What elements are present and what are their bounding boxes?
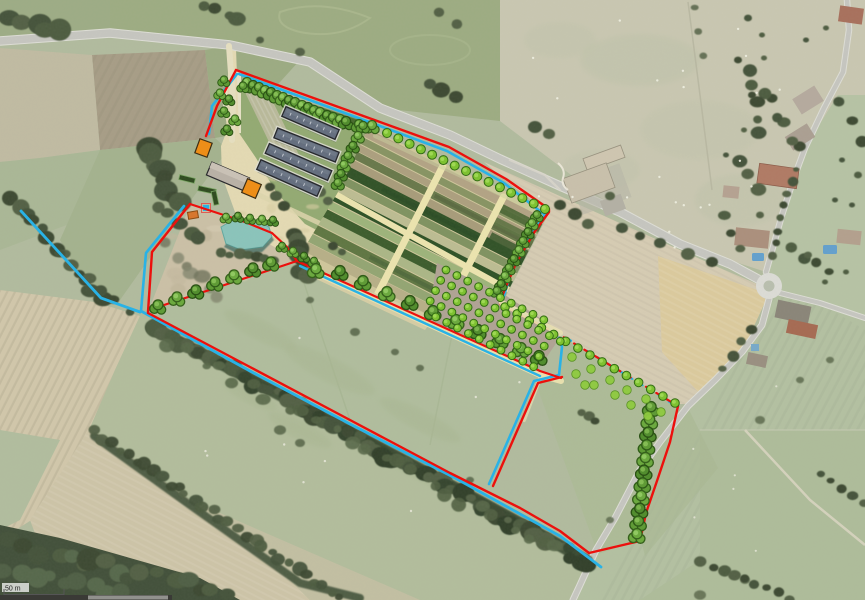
svg-text:50 m: 50 m <box>5 586 21 593</box>
